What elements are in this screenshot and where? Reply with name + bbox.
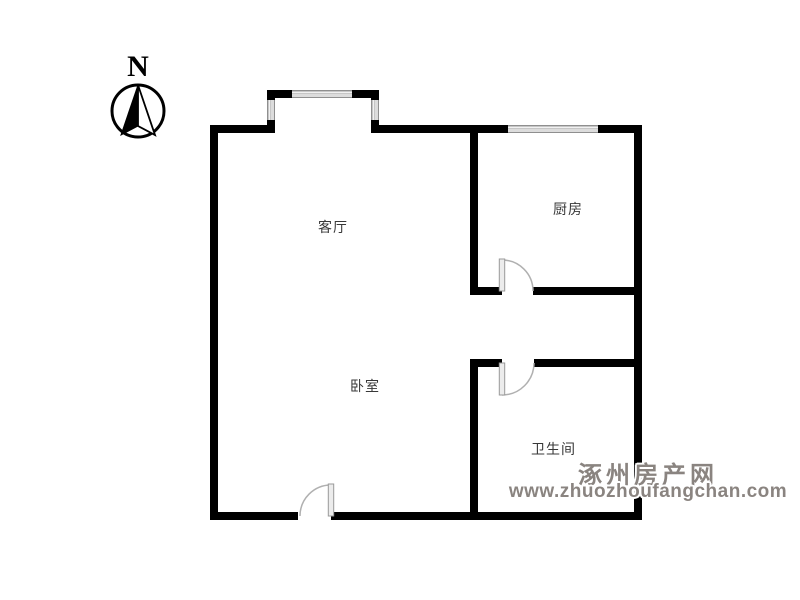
watermark-url: www.zhuozhoufangchan.com	[508, 481, 788, 503]
room-label-bedroom: 卧室	[350, 376, 380, 396]
bathroom-door-arc	[502, 363, 534, 395]
door-symbols	[0, 0, 800, 600]
bathroom-door-leaf	[499, 363, 504, 395]
room-label-living-room: 客厅	[318, 217, 348, 237]
bedroom-door-arc	[300, 485, 331, 516]
kitchen-door-arc	[502, 260, 533, 291]
floorplan-canvas: N 客厅 厨房 卧室 卫生间 涿州房产网	[0, 0, 800, 600]
kitchen-door-leaf	[499, 259, 504, 291]
bedroom-door-leaf	[328, 484, 333, 516]
room-label-kitchen: 厨房	[553, 199, 583, 219]
